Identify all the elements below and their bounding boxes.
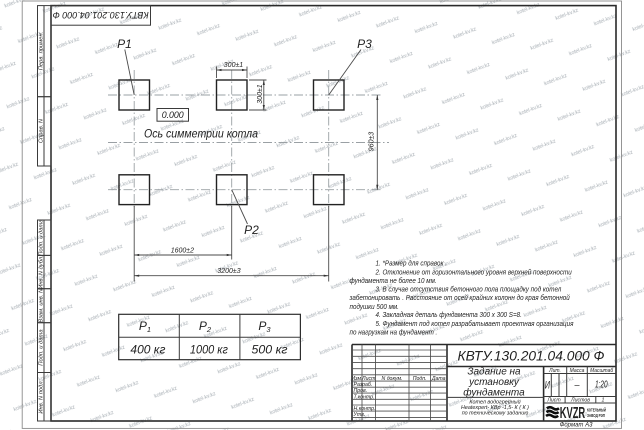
svg-text:Лист: Лист xyxy=(361,376,376,382)
svg-text:Справ. N: Справ. N xyxy=(38,118,44,143)
svg-text:КВТУ.130.201.04.000 Ф: КВТУ.130.201.04.000 Ф xyxy=(53,10,149,20)
svg-text:300±1: 300±1 xyxy=(257,84,264,104)
svg-text:установку: установку xyxy=(468,377,520,388)
svg-text:Подп.: Подп. xyxy=(413,376,427,382)
svg-text:3. В случае отсутствия бетонн: 3. В случае отсутствия бетонного пола пл… xyxy=(375,285,561,294)
svg-text:по нагрузкам на фундамент .: по нагрузкам на фундамент . xyxy=(350,328,438,337)
svg-text:500 кг: 500 кг xyxy=(252,345,288,357)
svg-text:0.000: 0.000 xyxy=(162,110,184,120)
svg-text:Масса: Масса xyxy=(570,368,585,374)
svg-text:Утв.: Утв. xyxy=(354,412,366,418)
svg-text:KVZR: KVZR xyxy=(560,405,586,422)
svg-text:по техническому заданию: по техническому заданию xyxy=(462,411,529,417)
svg-text:–: – xyxy=(573,380,580,390)
svg-text:фундамента: фундамента xyxy=(463,387,525,399)
svg-text:1600±2: 1600±2 xyxy=(171,247,194,254)
svg-text:Дата: Дата xyxy=(431,376,446,382)
svg-text:P1: P1 xyxy=(117,37,132,51)
svg-text:КВТУ.130.201.04.000 Ф: КВТУ.130.201.04.000 Ф xyxy=(458,348,605,364)
svg-text:Масштаб: Масштаб xyxy=(590,368,613,374)
svg-text:фундамента не более 10 мм.: фундамента не более 10 мм. xyxy=(350,277,437,286)
svg-text:Взам. инв. N: Взам. инв. N xyxy=(38,288,44,323)
svg-text:Инв. N подл.: Инв. N подл. xyxy=(38,380,44,414)
svg-text:Ось симметрии котла: Ось симметрии котла xyxy=(144,127,258,141)
svg-text:подушки 500 мм.: подушки 500 мм. xyxy=(350,302,399,311)
svg-text:Перв. примен.: Перв. примен. xyxy=(38,32,44,71)
svg-text:300±1: 300±1 xyxy=(224,62,244,69)
svg-text:Инв. N дубл.: Инв. N дубл. xyxy=(38,255,44,289)
svg-text:P2: P2 xyxy=(244,223,259,237)
svg-text:Лист: Лист xyxy=(546,398,561,404)
svg-text:ЗАВОД РЭП: ЗАВОД РЭП xyxy=(587,413,605,419)
svg-text:Задание на: Задание на xyxy=(467,367,521,378)
svg-text:Изм.: Изм. xyxy=(351,376,362,382)
svg-text:1000 кг: 1000 кг xyxy=(190,345,228,357)
svg-text:3200±3: 3200±3 xyxy=(217,268,240,275)
svg-text:Лит.: Лит. xyxy=(548,368,561,374)
svg-text:2. Отклонение от горизонтальн: 2. Отклонение от горизонтального уровня … xyxy=(375,268,572,277)
svg-text:Листов: Листов xyxy=(570,398,590,404)
svg-text:Подп. и дата: Подп. и дата xyxy=(38,329,44,366)
svg-text:P3: P3 xyxy=(357,37,372,51)
svg-text:забетонировать . Расстояние о: забетонировать . Расстояние от осей край… xyxy=(349,294,570,303)
svg-text:N докум.: N докум. xyxy=(382,376,403,382)
svg-text:Т.контр.: Т.контр. xyxy=(354,394,375,400)
svg-text:Подп. и дата: Подп. и дата xyxy=(38,219,44,256)
svg-text:4. Закладная деталь фундамент: 4. Закладная деталь фундамента 300 х 300… xyxy=(375,311,521,320)
svg-text:1. *Размер для справок .: 1. *Размер для справок . xyxy=(375,259,447,268)
svg-text:Пров.: Пров. xyxy=(354,388,368,394)
svg-text:1: 1 xyxy=(602,398,605,404)
svg-text:Формат А3: Формат А3 xyxy=(560,423,593,429)
svg-text:1:20: 1:20 xyxy=(595,379,608,391)
svg-text:960±3: 960±3 xyxy=(369,132,376,152)
svg-text:И: И xyxy=(545,380,550,392)
svg-text:5. Фундамент под котел разраб: 5. Фундамент под котел разрабатывает про… xyxy=(375,319,573,328)
svg-text:Н.контр.: Н.контр. xyxy=(354,406,376,412)
svg-text:400 кг: 400 кг xyxy=(130,345,165,357)
